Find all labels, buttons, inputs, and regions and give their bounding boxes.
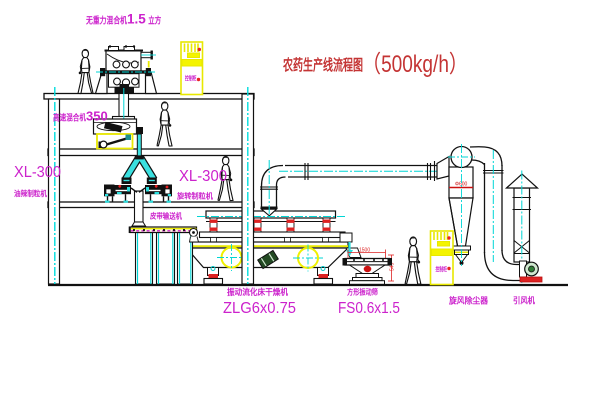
- svg-text:ZLG6x0.75: ZLG6x0.75: [223, 300, 296, 317]
- svg-text:油辣制粒机: 油辣制粒机: [14, 188, 47, 198]
- svg-text:振动流化床干燥机: 振动流化床干燥机: [227, 287, 288, 297]
- svg-text:旋转制粒机: 旋转制粒机: [176, 191, 213, 201]
- svg-text:（500kg/h）: （500kg/h）: [362, 51, 468, 78]
- svg-text:FS0.6x1.5: FS0.6x1.5: [338, 300, 400, 317]
- svg-text:农药生产线流程图: 农药生产线流程图: [282, 56, 363, 74]
- svg-text:引风机: 引风机: [513, 296, 535, 306]
- svg-text:1500: 1500: [359, 248, 370, 254]
- svg-text:控制柜: 控制柜: [436, 266, 448, 274]
- svg-text:皮带输送机: 皮带输送机: [149, 211, 182, 221]
- svg-text:控制柜: 控制柜: [185, 75, 197, 83]
- svg-text:XL-300: XL-300: [179, 168, 227, 185]
- svg-text:旋风除尘器: 旋风除尘器: [448, 296, 488, 306]
- svg-text:XL-300: XL-300: [14, 164, 61, 181]
- svg-text:方形振动筛: 方形振动筛: [347, 287, 378, 297]
